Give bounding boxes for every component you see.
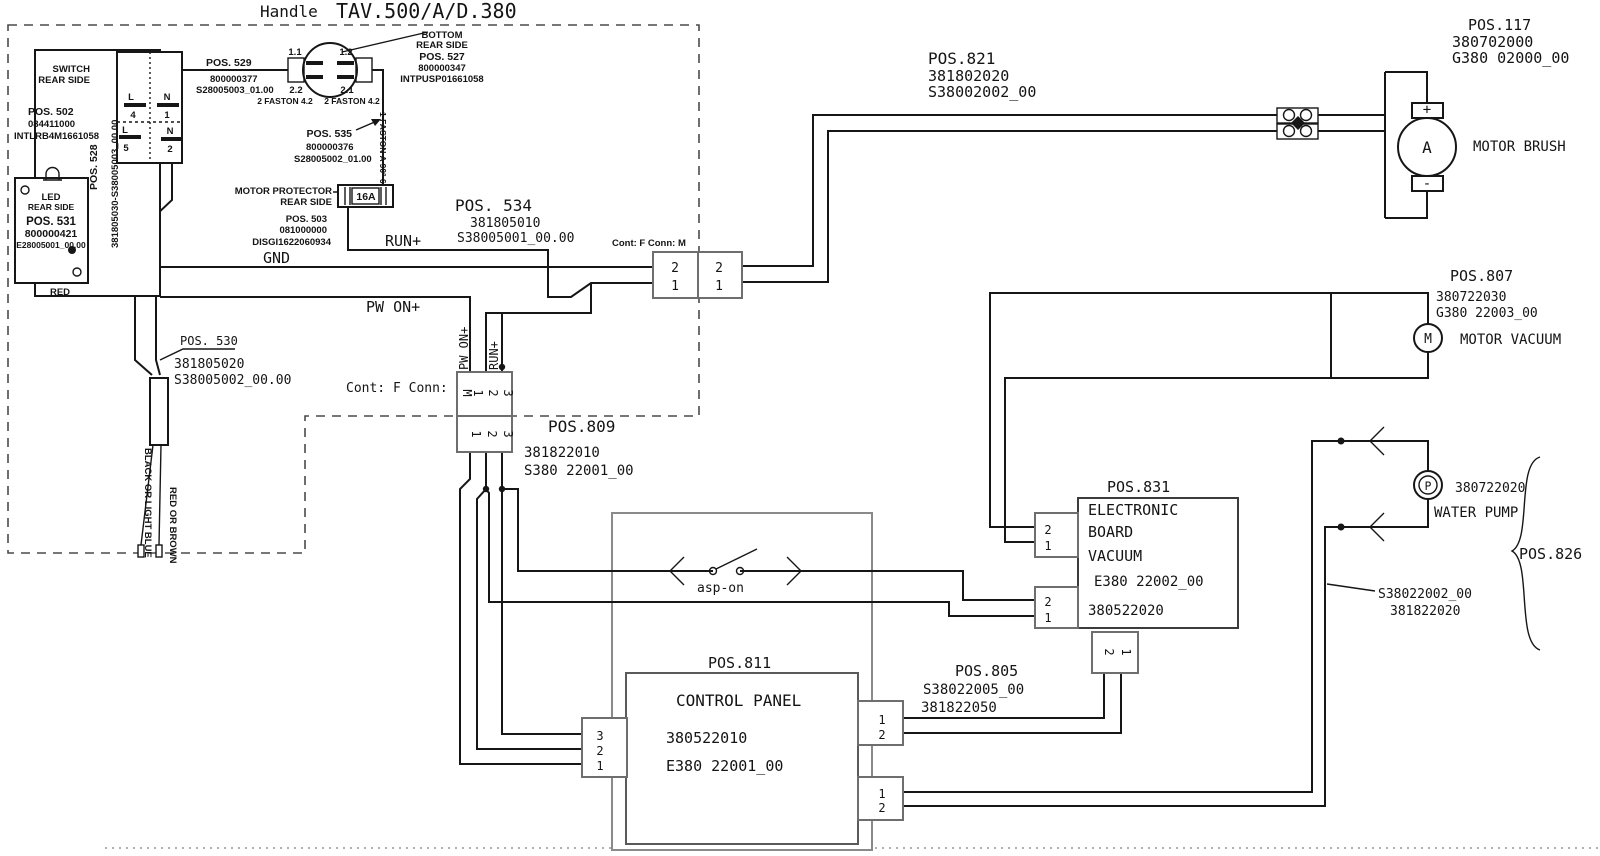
faston-label: 2 FASTON 4.2 — [324, 96, 380, 106]
pos805-code: 381822050 — [921, 700, 997, 716]
control-panel: POS.811 CONTROL PANEL 380522010 E380 220… — [582, 654, 903, 844]
motor-brush-name: MOTOR BRUSH — [1473, 139, 1566, 155]
asp-on-label: asp-on — [697, 581, 744, 596]
pos503-code: DISGI1622060934 — [252, 237, 331, 248]
motor-vacuum-name: MOTOR VACUUM — [1460, 332, 1561, 348]
contact-label: 2 — [167, 144, 172, 155]
pin-number: 2 — [485, 430, 499, 437]
pin-label: 1.2 — [339, 47, 352, 58]
pos531-code: E28005001_00.00 — [16, 240, 86, 250]
pos529-code: S28005003_01.00 — [196, 85, 274, 96]
pos527-label: POS. 527 — [419, 51, 465, 63]
pos534-label: POS. 534 — [455, 196, 532, 215]
pos534-code: 381805010 — [470, 216, 540, 231]
pos527-code: 800000347 — [418, 63, 466, 74]
motor-symbol: A — [1422, 138, 1432, 157]
pump-symbol: P — [1425, 479, 1432, 493]
handle-title: Handle — [260, 2, 318, 21]
pos807-code: G380 22003_00 — [1436, 306, 1538, 321]
pin-number: 1 — [878, 787, 885, 801]
pin-label: 2.1 — [340, 85, 354, 96]
motor-symbol: M — [1424, 332, 1432, 347]
contact-label: 1 — [164, 110, 170, 121]
protector-label: MOTOR PROTECTOR — [235, 186, 332, 197]
pos503-label: POS. 503 — [286, 214, 327, 225]
pwon-label: PW ON+ — [366, 298, 420, 316]
minus-terminal: - — [1423, 176, 1431, 192]
board-code: E380 22002_00 — [1094, 574, 1204, 590]
wire-color-label: BLACK OR LIGHT BLUE — [142, 448, 153, 558]
water-pump: P 380722020 WATER PUMP POS.826 S38022002… — [1370, 427, 1582, 650]
contact-label: N — [167, 126, 174, 137]
gnd-label: GND — [263, 249, 290, 267]
control-panel-title: CONTROL PANEL — [676, 691, 801, 710]
pin-number: 2 — [486, 389, 500, 396]
wire-color-label: RED OR BROWN — [167, 487, 178, 564]
led-label: REAR SIDE — [28, 202, 75, 212]
disconnect-chevrons — [1370, 427, 1384, 541]
pos502-code: 084411000 — [28, 119, 75, 130]
electronic-board-vacuum: POS.831 ELECTRONIC BOARD VACUUM E380 220… — [1035, 478, 1238, 673]
pos531-label: POS. 531 — [26, 216, 76, 228]
contact-label: 5 — [123, 143, 129, 154]
pin-number: 3 — [596, 729, 603, 743]
pin-number: 2 — [878, 728, 885, 742]
pin-number: 2 — [1044, 595, 1051, 609]
pin-number: 2 — [878, 801, 885, 815]
faston-vertical-label: 1 FASTON A 90° 6.3 — [378, 112, 388, 191]
pin-number: 1 — [1044, 611, 1051, 625]
pos821-code: S38002002_00 — [928, 83, 1036, 101]
pos811-label: POS.811 — [708, 654, 771, 672]
pump-code: 380722020 — [1455, 481, 1525, 496]
pos809-label: POS.809 — [548, 417, 615, 436]
motor-protector: 16A MOTOR PROTECTOR REAR SIDE POS. 503 0… — [235, 185, 393, 248]
pump-cable-code: 381822020 — [1390, 604, 1460, 619]
pin-number: 1 — [715, 279, 723, 294]
pin-number: 1 — [596, 759, 603, 773]
connector-pos809: Cont: F Conn: M 1 2 3 1 2 3 POS.809 3818… — [346, 372, 634, 479]
pin-number: 1 — [671, 279, 679, 294]
schematic-canvas: L 4 N 1 L 5 N 2 SWITCH REAR SIDE POS. 50… — [0, 0, 1600, 856]
pump-cable-code: S38022002_00 — [1378, 587, 1472, 602]
water-pump-name: WATER PUMP — [1434, 505, 1518, 521]
round-connector-527: 1.1 1.2 2.2 2.1 2 FASTON 4.2 2 FASTON 4.… — [196, 30, 484, 106]
pos502-code: INTLRB4M1661058 — [14, 131, 99, 142]
pos805-code: S38022005_00 — [923, 682, 1024, 698]
pos117-code: G380 02000_00 — [1452, 49, 1569, 67]
run-vertical-label: RUN+ — [487, 341, 501, 370]
contact-label: L — [122, 125, 128, 136]
run-label: RUN+ — [385, 232, 421, 250]
pos826-label: POS.826 — [1519, 545, 1582, 563]
pos117-label: POS.117 — [1468, 16, 1531, 34]
pin-number: 1 — [1044, 539, 1051, 553]
board-text: VACUUM — [1088, 547, 1142, 565]
pin-number: 2 — [715, 261, 723, 276]
board-text: BOARD — [1088, 523, 1133, 541]
contact-label: 4 — [130, 110, 136, 121]
pos529-code: 800000377 — [210, 74, 258, 85]
pos807-code: 380722030 — [1436, 290, 1506, 305]
led-board: LED REAR SIDE POS. 531 800000421 E280050… — [15, 168, 88, 299]
pos527-code: INTPUSP01661058 — [400, 74, 483, 85]
pos502-label: POS. 502 — [28, 106, 74, 118]
pos531-code: 800000421 — [25, 228, 78, 240]
contact-label: L — [128, 92, 134, 103]
pin-label: 2.2 — [289, 85, 302, 96]
board-code: 380522020 — [1088, 603, 1164, 619]
board-text: ELECTRONIC — [1088, 501, 1178, 519]
pin-number: 1 — [471, 389, 485, 396]
pos821-label: POS.821 — [928, 49, 995, 68]
pos530-code: S38005002_00.00 — [174, 373, 291, 388]
protector-rating: 16A — [356, 191, 376, 203]
connector-label: Cont: F Conn: — [346, 381, 448, 396]
panel-code: E380 22001_00 — [666, 757, 783, 775]
pin-number: 1 — [878, 713, 885, 727]
pos831-label: POS.831 — [1107, 478, 1170, 496]
pos534-code: S38005001_00.00 — [457, 231, 574, 246]
motor-vacuum: M POS.807 380722030 G380 22003_00 MOTOR … — [1414, 267, 1561, 352]
pwon-vertical-label: PW ON+ — [457, 327, 471, 370]
pos527-label: REAR SIDE — [416, 40, 468, 51]
wiring-diagram: L 4 N 1 L 5 N 2 SWITCH REAR SIDE POS. 50… — [0, 0, 1600, 856]
pin-number: 3 — [501, 430, 515, 437]
red-wire-label: RED — [50, 287, 70, 298]
faston-label: 2 FASTON 4.2 — [257, 96, 313, 106]
pos530-label: POS. 530 — [180, 334, 238, 348]
connector-label: Cont: F Conn: M — [612, 238, 686, 249]
pin-number: 2 — [596, 744, 603, 758]
protector-label: REAR SIDE — [280, 197, 332, 208]
pos805-label: POS.805 — [955, 662, 1018, 680]
pos530-code: 381805020 — [174, 357, 244, 372]
pin-label: 1.1 — [288, 47, 302, 58]
pos528-label: POS. 528 — [88, 144, 100, 190]
pos809-code: S380 22001_00 — [524, 463, 634, 479]
pos535-label: POS. 535 — [306, 128, 352, 140]
panel-code: 380522010 — [666, 729, 747, 747]
pin-number: 2 — [671, 261, 679, 276]
pos529-label: POS. 529 — [206, 57, 252, 69]
switch-label: REAR SIDE — [38, 75, 90, 86]
pos528-cable-code: 381805030-S38005003_00.00 — [110, 120, 121, 248]
contact-label: N — [164, 92, 171, 103]
plus-terminal: + — [1423, 102, 1431, 118]
pin-number: 2 — [1044, 523, 1051, 537]
model-title: TAV.500/A/D.380 — [336, 0, 517, 23]
pos535-code: 800000376 — [306, 142, 354, 153]
pos809-code: 381822010 — [524, 445, 600, 461]
switch-label: SWITCH — [53, 64, 91, 75]
pos807-label: POS.807 — [1450, 267, 1513, 285]
pos503-code: 081000000 — [279, 225, 327, 236]
pin-number: 2 — [1102, 648, 1116, 655]
pin-number: 1 — [469, 430, 483, 437]
pin-number: 3 — [501, 389, 515, 396]
pin-number: 1 — [1119, 648, 1133, 655]
faston-connector-pair — [1277, 108, 1318, 139]
motor-brush: + - A POS.117 380702000 G380 02000_00 MO… — [1398, 16, 1569, 192]
pos535-code: S28005002_01.00 — [294, 154, 372, 165]
